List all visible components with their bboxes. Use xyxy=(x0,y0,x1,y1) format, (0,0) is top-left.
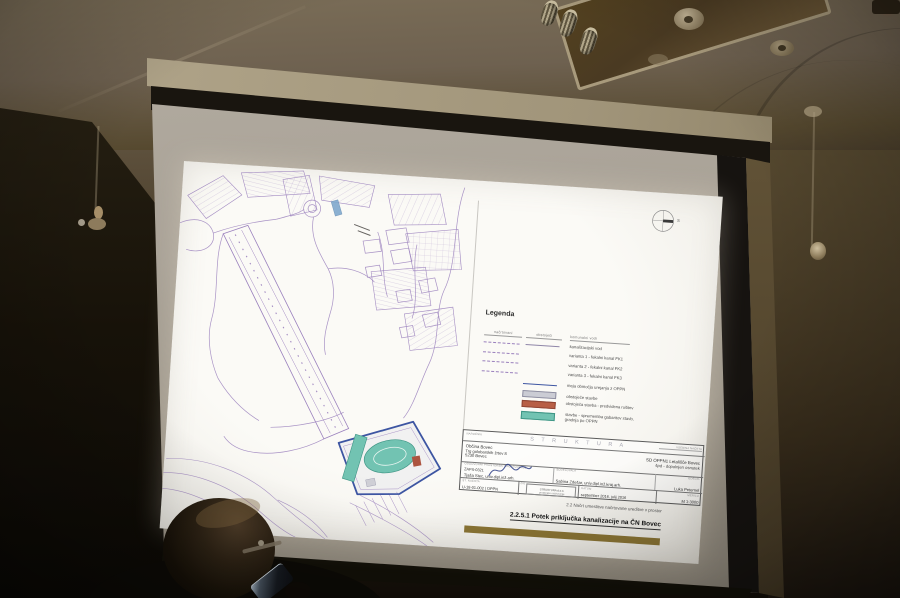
legend-col-existing: obstoječi xyxy=(526,332,562,340)
rule xyxy=(577,485,579,499)
rule xyxy=(552,467,554,483)
cadastral-map xyxy=(160,161,471,547)
client-city: 5230 Bovec xyxy=(465,453,487,459)
legend-col-utilities: komunalni vodi xyxy=(570,335,630,345)
legend-line-sample xyxy=(526,344,560,347)
stadium-area xyxy=(335,417,443,500)
glasses-glint xyxy=(258,540,264,546)
conference-room-photo: S Legenda načrtovani obstoječi komunalni… xyxy=(0,0,900,598)
corner-vent xyxy=(872,0,900,14)
legend-line-sample xyxy=(484,341,520,344)
pen-annotation xyxy=(354,224,372,235)
legend-title: Legenda xyxy=(485,309,514,318)
ceiling-fixture xyxy=(648,54,668,65)
detector-center xyxy=(778,45,786,51)
doc-label: VSEBINA NAČRTA xyxy=(659,445,702,452)
signature xyxy=(487,460,534,483)
legend-swatch-new xyxy=(521,411,555,421)
date-label: DATUM xyxy=(581,487,592,491)
project-no-label: ŠT. NAČRTA xyxy=(462,479,480,483)
smoke-detector xyxy=(674,8,704,30)
rule xyxy=(518,481,520,495)
north-arrow-icon xyxy=(648,204,690,239)
small-building xyxy=(366,478,376,487)
ceiling-detector-right xyxy=(770,40,794,56)
date-value: september 2016, julij 2016 xyxy=(581,492,627,500)
legend-label: varianta 3 - fekalni kanal FK3 xyxy=(567,373,655,384)
scale-value: M 1:3000 xyxy=(656,497,698,505)
legend: Legenda načrtovani obstoječi komunalni v… xyxy=(472,309,657,439)
legend-line-sample xyxy=(523,383,557,386)
legend-line-sample xyxy=(482,360,518,363)
legend-line-sample xyxy=(483,351,519,354)
legend-swatch-existing xyxy=(522,390,556,399)
north-label: S xyxy=(677,218,680,223)
lamp-glint xyxy=(78,219,85,226)
legend-swatch-demolition xyxy=(521,400,555,409)
wall-right xyxy=(768,150,900,598)
stamp-label: ŽIG xyxy=(520,482,525,485)
project-no: U-18-01-002 | OPPN xyxy=(462,484,498,491)
legend-label: meja območja urejanja z OPPN xyxy=(567,383,655,394)
legend-col-planned: načrtovani xyxy=(484,329,522,338)
runway xyxy=(210,224,361,441)
wall-lamp-right xyxy=(810,242,826,260)
footer-title: 2.2.5.1 Potek priključka kanalizacije na… xyxy=(510,511,662,530)
title-block: NAROČNIK S T R U K T U R A VSEBINA NAČRT… xyxy=(459,429,705,506)
collab-label: SODELOVALA xyxy=(556,468,576,472)
presenter-hand xyxy=(285,582,311,598)
wall-lamp-left xyxy=(88,218,106,230)
stamp-box: STRUKTURA d.o.o. prostorsko načrtovanje xyxy=(526,483,577,497)
client-label: NAROČNIK xyxy=(466,432,482,436)
smoke-detector-center xyxy=(684,16,693,23)
legend-line-sample xyxy=(482,370,518,373)
